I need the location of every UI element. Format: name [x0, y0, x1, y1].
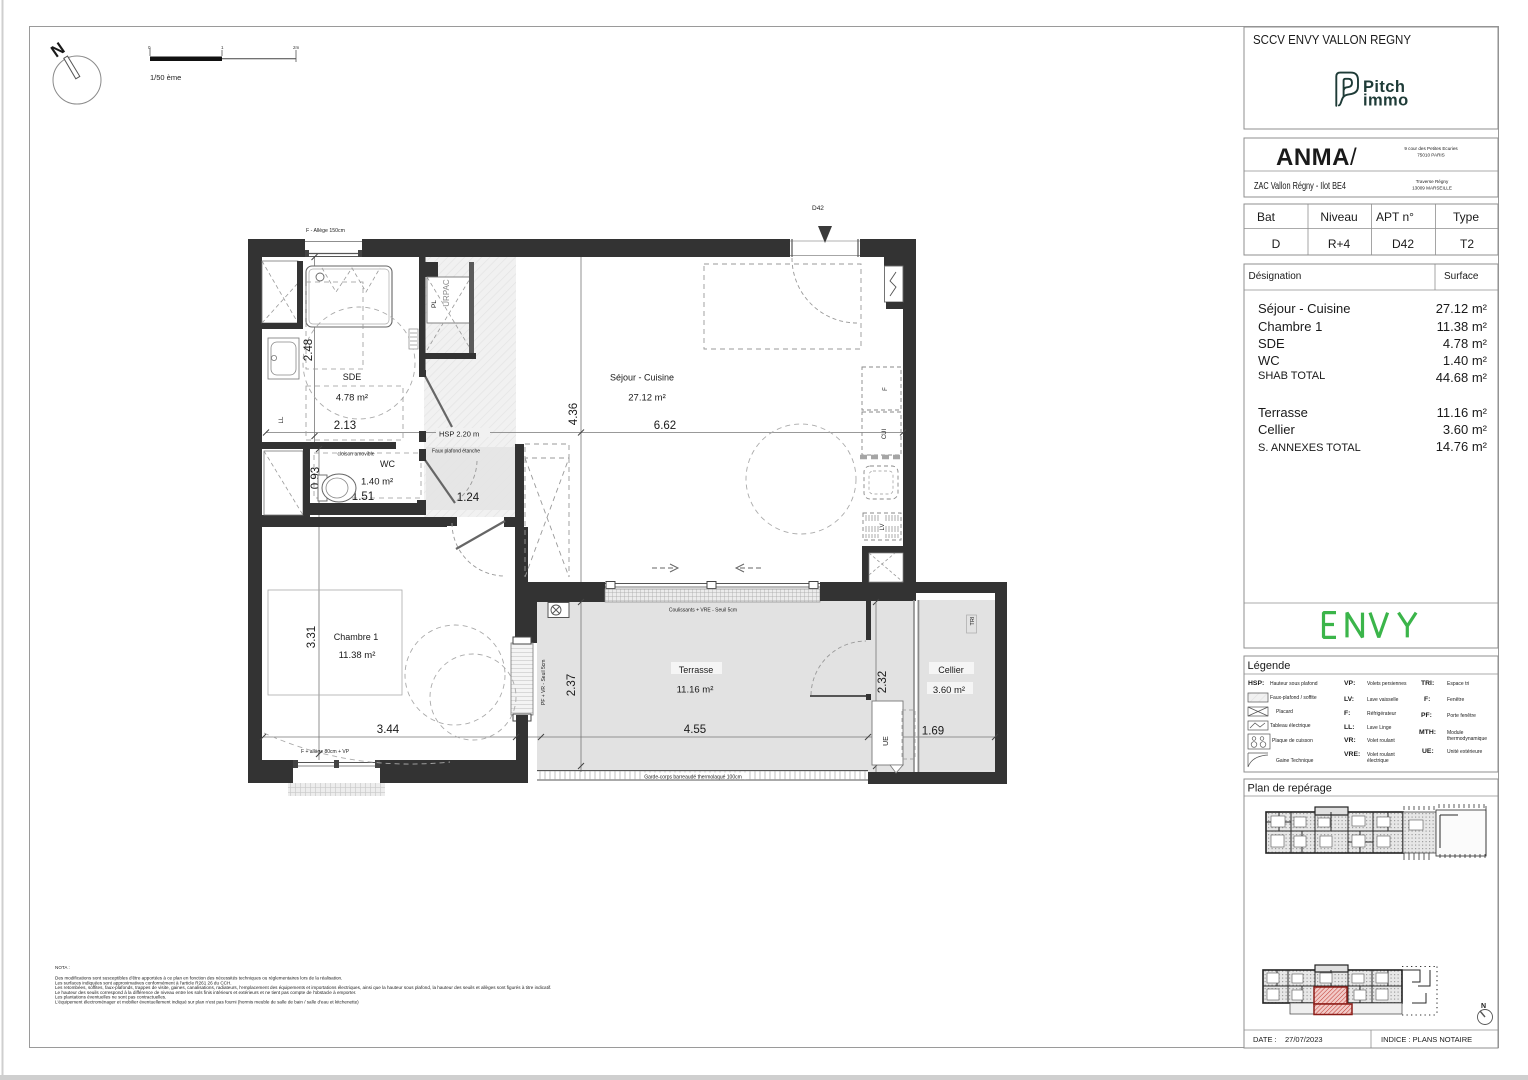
svg-text:F:: F: — [1344, 710, 1350, 717]
svg-text:F: F — [883, 387, 889, 391]
svg-text:Traverse Régny: Traverse Régny — [1416, 179, 1449, 184]
svg-text:Volets persiennes: Volets persiennes — [1367, 681, 1407, 687]
svg-text:SHAB TOTAL: SHAB TOTAL — [1258, 370, 1325, 382]
svg-text:Placard: Placard — [1276, 709, 1293, 715]
svg-text:14.76 m²: 14.76 m² — [1436, 439, 1488, 454]
svg-text:Désignation: Désignation — [1249, 271, 1302, 282]
svg-text:INDICE : PLANS NOTAIRE: INDICE : PLANS NOTAIRE — [1381, 1035, 1472, 1044]
svg-text:HSP:: HSP: — [1248, 680, 1264, 687]
svg-text:WC: WC — [1258, 353, 1280, 368]
svg-text:1.69: 1.69 — [922, 726, 944, 738]
svg-text:11.38 m²: 11.38 m² — [339, 650, 376, 661]
svg-text:Type: Type — [1453, 210, 1479, 224]
svg-text:F - Allège 150cm: F - Allège 150cm — [306, 228, 345, 234]
svg-text:VR:: VR: — [1344, 737, 1356, 744]
svg-text:PL: PL — [431, 300, 438, 308]
svg-text:Porte fenêtre: Porte fenêtre — [1447, 713, 1476, 719]
svg-text:Garde-corps barreaudé thermola: Garde-corps barreaudé thermolaqué 100cm — [644, 775, 742, 781]
svg-text:Hauteur sous plafond: Hauteur sous plafond — [1270, 681, 1318, 687]
svg-text:44.68 m²: 44.68 m² — [1436, 370, 1488, 385]
svg-text:Cellier: Cellier — [1258, 422, 1296, 437]
svg-text:1.40 m²: 1.40 m² — [1443, 353, 1488, 368]
svg-text:2.37: 2.37 — [566, 674, 578, 696]
svg-text:Lave vaisselle: Lave vaisselle — [1367, 697, 1399, 703]
svg-text:2.32: 2.32 — [877, 671, 889, 693]
svg-text:SDE: SDE — [343, 372, 362, 382]
svg-text:Terrasse: Terrasse — [1258, 405, 1308, 420]
svg-text:VRE:: VRE: — [1344, 751, 1360, 758]
svg-text:Chambre 1: Chambre 1 — [334, 632, 379, 642]
svg-text:Plaque de cuisson: Plaque de cuisson — [1272, 738, 1313, 744]
svg-text:TRI: TRI — [970, 616, 976, 625]
svg-text:DATE :: DATE : — [1253, 1035, 1277, 1044]
svg-text:cloison amovible: cloison amovible — [338, 452, 375, 458]
svg-text:L'équipement électroménager et: L'équipement électroménager et mobilier … — [55, 1000, 359, 1005]
svg-text:R+4: R+4 — [1328, 237, 1351, 251]
svg-text:Séjour - Cuisine: Séjour - Cuisine — [610, 373, 674, 383]
svg-text:électrique: électrique — [1367, 758, 1389, 764]
svg-text:27/07/2023: 27/07/2023 — [1285, 1035, 1323, 1044]
svg-text:11.38 m²: 11.38 m² — [1437, 319, 1488, 334]
svg-text:Chambre 1: Chambre 1 — [1258, 319, 1322, 334]
svg-text:Fenêtre: Fenêtre — [1447, 697, 1464, 703]
svg-text:HSP 2.20 m: HSP 2.20 m — [439, 430, 479, 439]
svg-text:PF:: PF: — [1421, 712, 1432, 719]
svg-text:1/50 ème: 1/50 ème — [150, 73, 181, 82]
svg-text:2.48: 2.48 — [303, 339, 315, 361]
svg-text:Surface: Surface — [1444, 271, 1479, 282]
svg-text:Réfrigérateur: Réfrigérateur — [1367, 711, 1397, 717]
svg-text:D: D — [1272, 237, 1281, 251]
svg-text:Séjour - Cuisine: Séjour - Cuisine — [1258, 301, 1351, 316]
svg-text:Bat: Bat — [1257, 210, 1276, 224]
svg-text:Unité extérieure: Unité extérieure — [1447, 749, 1483, 755]
svg-text:ZAC Vallon Régny - Ilot BE4: ZAC Vallon Régny - Ilot BE4 — [1254, 181, 1346, 192]
svg-text:LV:: LV: — [1344, 696, 1354, 703]
svg-text:ANMA/: ANMA/ — [1276, 144, 1357, 171]
svg-text:APT n°: APT n° — [1376, 210, 1414, 224]
svg-text:3.60 m²: 3.60 m² — [933, 685, 965, 696]
svg-text:4.78 m²: 4.78 m² — [336, 393, 368, 404]
svg-text:URPAC: URPAC — [442, 279, 451, 307]
svg-text:Faux-plafond / soffite: Faux-plafond / soffite — [1270, 695, 1317, 701]
svg-text:SCCV ENVY VALLON REGNY: SCCV ENVY VALLON REGNY — [1253, 33, 1412, 47]
svg-text:D42: D42 — [812, 205, 824, 212]
svg-text:S. ANNEXES TOTAL: S. ANNEXES TOTAL — [1258, 442, 1361, 454]
svg-text:Tableau électrique: Tableau électrique — [1270, 723, 1311, 729]
svg-text:6.62: 6.62 — [654, 420, 676, 432]
svg-text:Plan de repérage: Plan de repérage — [1248, 783, 1332, 795]
svg-text:Légende: Légende — [1248, 660, 1291, 672]
svg-text:LV: LV — [880, 524, 886, 531]
svg-text:TRI:: TRI: — [1421, 680, 1434, 687]
svg-text:27.12 m²: 27.12 m² — [1436, 301, 1488, 316]
svg-text:UE: UE — [883, 736, 890, 746]
svg-text:9 cour des Petites Ecuries: 9 cour des Petites Ecuries — [1404, 146, 1458, 151]
svg-text:1.24: 1.24 — [457, 492, 480, 504]
svg-text:F:: F: — [1424, 696, 1430, 703]
svg-text:LL:: LL: — [1344, 724, 1355, 731]
svg-text:Lave Linge: Lave Linge — [1367, 725, 1392, 731]
svg-text:T2: T2 — [1460, 237, 1474, 251]
svg-text:N: N — [1481, 1003, 1486, 1010]
svg-text:WC: WC — [380, 459, 395, 469]
svg-text:4.55: 4.55 — [684, 724, 706, 736]
svg-text:D42: D42 — [1392, 237, 1414, 251]
svg-text:3.44: 3.44 — [377, 724, 400, 736]
svg-text:CUI: CUI — [882, 429, 888, 440]
svg-text:3.31: 3.31 — [306, 626, 318, 648]
svg-text:11.16 m²: 11.16 m² — [1437, 405, 1488, 420]
svg-text:Terrasse: Terrasse — [679, 665, 714, 675]
svg-text:4.36: 4.36 — [568, 403, 580, 425]
svg-text:27.12 m²: 27.12 m² — [628, 393, 666, 404]
svg-text:13009 MARSEILLE: 13009 MARSEILLE — [1412, 186, 1452, 191]
svg-text:Faux plafond étanche: Faux plafond étanche — [432, 449, 480, 455]
svg-text:PF + VR - Seuil 5cm: PF + VR - Seuil 5cm — [541, 660, 547, 705]
svg-text:MTH:: MTH: — [1419, 729, 1436, 736]
svg-text:UE:: UE: — [1422, 748, 1434, 755]
svg-text:2m: 2m — [293, 45, 300, 50]
svg-text:LL: LL — [279, 416, 285, 423]
svg-text:4.78 m²: 4.78 m² — [1443, 336, 1488, 351]
svg-text:Espace tri: Espace tri — [1447, 681, 1469, 687]
svg-text:Cellier: Cellier — [938, 665, 964, 675]
svg-text:2.13: 2.13 — [334, 420, 356, 432]
svg-text:Volet roulant: Volet roulant — [1367, 738, 1395, 744]
svg-text:3.60 m²: 3.60 m² — [1443, 422, 1488, 437]
svg-text:Gaine Technique: Gaine Technique — [1276, 758, 1314, 764]
svg-text:SDE: SDE — [1258, 336, 1285, 351]
svg-text:1.40 m²: 1.40 m² — [361, 477, 393, 488]
svg-text:NOTA :: NOTA : — [55, 965, 70, 970]
svg-text:VP:: VP: — [1344, 680, 1355, 687]
svg-text:thermodynamique: thermodynamique — [1447, 736, 1487, 742]
svg-text:Coulissants + VRE - Seuil 5cm: Coulissants + VRE - Seuil 5cm — [669, 608, 737, 614]
svg-text:75010 PARIS: 75010 PARIS — [1417, 153, 1445, 158]
svg-text:Niveau: Niveau — [1320, 210, 1357, 224]
svg-text:immo: immo — [1363, 92, 1409, 110]
svg-text:11.16 m²: 11.16 m² — [677, 685, 714, 696]
